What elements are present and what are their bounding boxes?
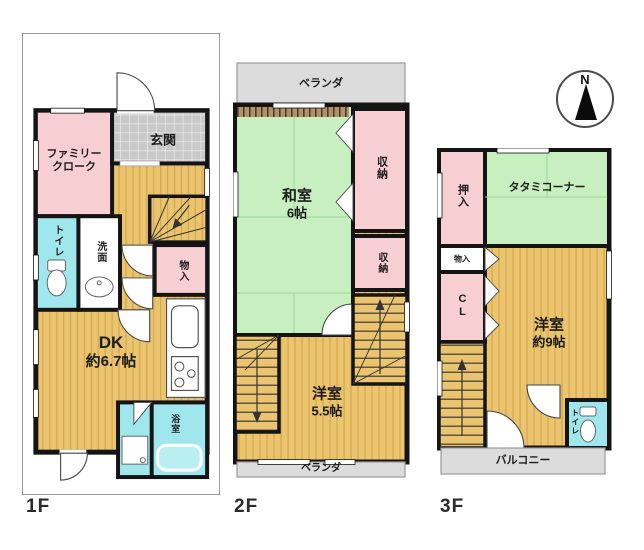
kitchen-sink-icon (171, 306, 198, 348)
floor-plan-page: ファミリー クローク 玄関 トイレ 洗面 物入 DK 約6.7帖 浴室 (0, 0, 644, 550)
window (233, 172, 238, 217)
room-label-bathroom: 浴室 (170, 414, 181, 434)
floor-plan-3f: 押入 タタミコーナー 物入 CL 洋室 約9帖 トイレ バルコニー (437, 148, 612, 478)
sink-icon (85, 277, 113, 297)
window (33, 389, 38, 417)
room-label-closet-upper: 収納 (375, 156, 388, 180)
room-label-yoshitsu-3f: 洋室 約9帖 (532, 316, 565, 349)
washing-machine-icon (122, 436, 148, 464)
window (33, 141, 38, 171)
door-swing-exit (61, 453, 88, 480)
room-label-balcony: バルコニー (496, 455, 551, 468)
room-label-veranda-top: ベランダ (299, 78, 343, 91)
room-label-yoshitsu-2f: 洋室 5.5帖 (311, 385, 342, 418)
floor-tag-2f: 2F (234, 496, 258, 518)
window (607, 251, 612, 299)
window (33, 330, 38, 365)
room-label-closet-cl: CL (456, 293, 469, 319)
bathtub-icon (158, 445, 202, 470)
room-label-storage-3f: 物入 (454, 254, 470, 263)
room-label-oshiire: 押入 (456, 184, 469, 208)
floor-plan-2f: ベランダ 和室 6帖 収納 収納 洋室 5.5帖 ベランダ (233, 62, 414, 478)
floor-tag-3f: 3F (440, 496, 464, 518)
tokonoma-strip (237, 107, 349, 117)
toilet-icon-1f (48, 260, 66, 271)
north-arrow-icon (575, 84, 597, 120)
window (405, 302, 410, 332)
room-label-storage-1f: 物入 (176, 260, 188, 282)
room-label-dk: DK 約6.7帖 (86, 333, 137, 371)
window (51, 108, 85, 113)
room-label-washroom: 洗面 (94, 241, 106, 263)
room-label-veranda-bottom: ベランダ (301, 463, 341, 475)
toilet-icon-3f (580, 407, 596, 416)
window (273, 103, 325, 108)
room-label-family-cloak: ファミリー クローク (47, 148, 102, 174)
room-label-closet-lower: 収納 (375, 252, 387, 274)
entrance-door-swing (117, 73, 155, 111)
window (437, 173, 442, 218)
room-label-toilet-1f: トイレ (51, 225, 63, 258)
room-label-washitsu: 和室 6帖 (282, 187, 312, 220)
window (497, 148, 549, 153)
floor-1f-drawing (23, 34, 219, 494)
window (205, 168, 210, 196)
genkan-step (120, 161, 160, 166)
compass: N (556, 70, 614, 128)
room-label-tatami-corner: タタミコーナー (509, 182, 586, 195)
floor-tag-1f: 1F (26, 496, 50, 518)
window (33, 255, 38, 280)
window (437, 361, 442, 396)
room-label-genkan: 玄関 (150, 132, 176, 147)
floor-plan-1f: ファミリー クローク 玄関 トイレ 洗面 物入 DK 約6.7帖 浴室 (22, 33, 220, 495)
room-label-toilet-3f: トイレ (570, 409, 579, 436)
